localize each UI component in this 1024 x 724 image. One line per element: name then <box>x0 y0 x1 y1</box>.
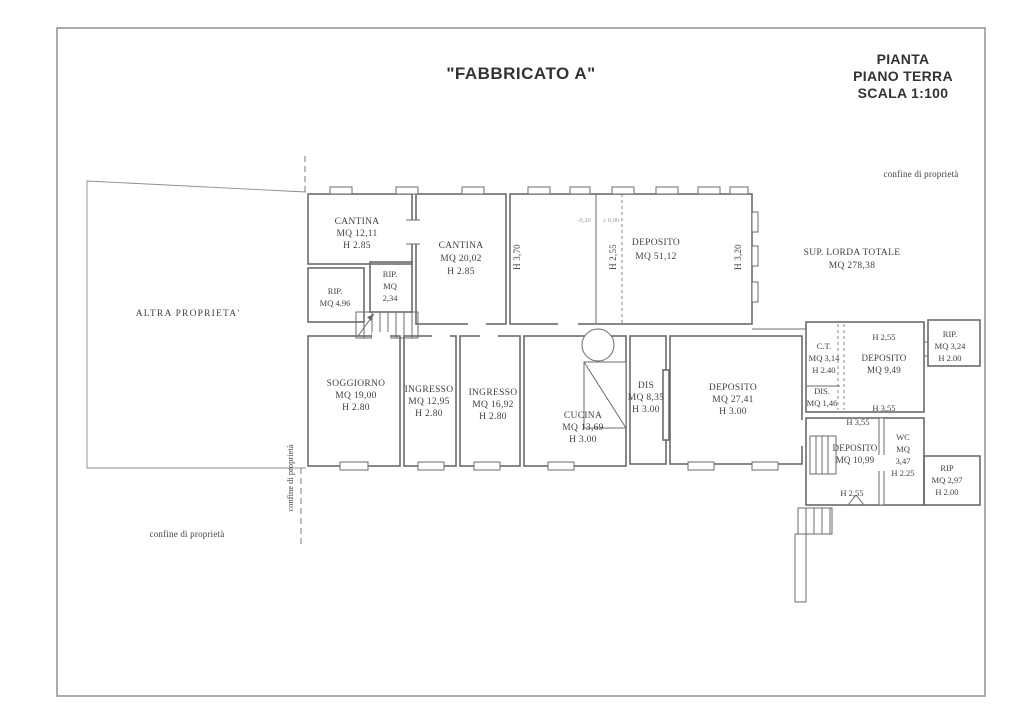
room-area: MQ 3,24 <box>935 341 966 351</box>
room-name: WC <box>896 432 910 442</box>
height-h255-dep949: H 2,55 <box>872 332 895 342</box>
room-name: CANTINA <box>335 217 380 227</box>
room-label-cantina-large: CANTINA MQ 20,02 H 2.85 <box>439 241 484 277</box>
room-label-ingresso-1692: INGRESSO MQ 16,92 H 2.80 <box>469 388 518 422</box>
room-area: MQ 8,35 <box>628 393 664 403</box>
height-h255-top: H 2,55 <box>608 244 618 270</box>
room-label-dis-146: DIS. MQ 1,46 <box>807 386 838 408</box>
room-name: RIP. <box>328 286 342 296</box>
height-h370: H 3,70 <box>512 244 522 270</box>
building-title: "FABBRICATO A" <box>446 64 595 83</box>
page-frame <box>57 28 985 696</box>
room-height: H 2.80 <box>342 403 370 413</box>
level-mark-left: -0,20 <box>577 217 591 224</box>
room-area: MQ 12,95 <box>408 397 449 407</box>
height-h355-lower: H 3,55 <box>846 417 869 427</box>
gross-area-label: SUP. LORDA TOTALE MQ 278,38 <box>804 248 901 271</box>
room-area: MQ 10,99 <box>836 455 875 465</box>
room-label-deposito-5112: DEPOSITO MQ 51,12 <box>632 238 680 262</box>
room-label-rip-297: RIP MQ 2,97 H 2.00 <box>932 463 963 497</box>
plan-title-line3: SCALA 1:100 <box>858 85 949 101</box>
walls-top-row <box>308 194 806 329</box>
room-name: DIS. <box>814 386 830 396</box>
room-height: H 3.00 <box>719 407 747 417</box>
height-h255-bottom: H 2,55 <box>840 488 863 498</box>
room-area: MQ 2,97 <box>932 475 963 485</box>
room-area-value: 2,34 <box>383 293 399 303</box>
room-area: MQ 9,49 <box>867 365 901 375</box>
gross-area-line1: SUP. LORDA TOTALE <box>804 248 901 258</box>
room-label-rip-496: RIP. MQ 4,96 <box>320 286 351 308</box>
room-name: DEPOSITO <box>632 238 680 248</box>
room-area-label: MQ <box>896 444 910 454</box>
level-marks: -0,20 ± 0,00 <box>577 217 619 224</box>
room-name: C.T. <box>817 341 831 351</box>
room-height: H 2.00 <box>938 353 961 363</box>
room-name: DIS <box>638 381 654 391</box>
room-name: DEPOSITO <box>862 353 907 363</box>
room-label-ct: C.T. MQ 3,14 H 2.40 <box>809 341 840 375</box>
room-name: DEPOSITO <box>833 443 878 453</box>
room-name: RIP. <box>943 329 957 339</box>
room-label-soggiorno: SOGGIORNO MQ 19,00 H 2.80 <box>327 379 386 413</box>
room-label-ingresso-1295: INGRESSO MQ 12,95 H 2.80 <box>405 385 454 419</box>
room-area: MQ 20,02 <box>440 254 481 264</box>
height-h320: H 3,20 <box>733 244 743 270</box>
room-height: H 2.80 <box>415 409 443 419</box>
property-boundary-lines <box>301 156 305 544</box>
room-name: CANTINA <box>439 241 484 251</box>
room-area: MQ 19,00 <box>335 391 376 401</box>
plan-title-line2: PIANO TERRA <box>853 68 953 84</box>
room-area: MQ 16,92 <box>472 400 513 410</box>
plan-title-line1: PIANTA <box>877 51 930 67</box>
boundary-label-top-right: confine di proprietà <box>884 169 959 179</box>
level-mark-right: ± 0,00 <box>603 217 620 224</box>
floor-plan-drawing: "FABBRICATO A" PIANTA PIANO TERRA SCALA … <box>0 0 1024 724</box>
room-label-dis-835: DIS MQ 8,35 H 3.00 <box>628 381 664 415</box>
room-height: H 2.85 <box>343 241 371 251</box>
room-area: MQ 51,12 <box>635 252 676 262</box>
boundary-label-bottom-left: confine di proprietà <box>150 529 225 539</box>
room-height: H 2.85 <box>447 267 475 277</box>
room-name: RIP. <box>383 269 397 279</box>
room-height: H 2.25 <box>891 468 914 478</box>
other-property-outline <box>87 181 306 468</box>
room-label-rip-234: RIP. MQ 2,34 <box>383 269 399 303</box>
room-name: RIP <box>940 463 954 473</box>
room-area: MQ 13,69 <box>562 423 603 433</box>
room-label-wc: WC MQ 3,47 H 2.25 <box>891 432 914 478</box>
boundary-label-vertical: confine di proprietà <box>285 444 295 511</box>
room-name: INGRESSO <box>469 388 518 398</box>
room-height: H 2.80 <box>479 412 507 422</box>
room-area: MQ 12,11 <box>336 229 377 239</box>
room-area: MQ 27,41 <box>712 395 753 405</box>
height-h355-upper: H 3,55 <box>872 403 895 413</box>
room-area: MQ 4,96 <box>320 298 351 308</box>
plan-title-block: PIANTA PIANO TERRA SCALA 1:100 <box>853 51 953 101</box>
room-label-cucina: CUCINA MQ 13,69 H 3.00 <box>562 411 603 445</box>
external-staircase <box>795 508 832 602</box>
room-name: DEPOSITO <box>709 383 757 393</box>
room-name: CUCINA <box>564 411 602 421</box>
room-label-cantina-small: CANTINA MQ 12,11 H 2.85 <box>335 217 380 251</box>
room-height: H 2.40 <box>812 365 835 375</box>
room-label-deposito-949: DEPOSITO MQ 9,49 <box>862 353 907 375</box>
room-label-deposito-2741: DEPOSITO MQ 27,41 H 3.00 <box>709 383 757 417</box>
other-property-label: ALTRA PROPRIETA' <box>136 309 241 319</box>
room-label-rip-324: RIP. MQ 3,24 H 2.00 <box>935 329 966 363</box>
room-height: H 2.00 <box>935 487 958 497</box>
room-name: INGRESSO <box>405 385 454 395</box>
room-area: MQ 3,14 <box>809 353 840 363</box>
room-name: SOGGIORNO <box>327 379 386 389</box>
room-label-deposito-1099: DEPOSITO MQ 10,99 <box>833 443 878 465</box>
room-area-value: 3,47 <box>896 456 911 466</box>
room-area: MQ 1,46 <box>807 398 838 408</box>
room-height: H 3.00 <box>632 405 660 415</box>
gross-area-line2: MQ 278,38 <box>829 261 876 271</box>
room-area-label: MQ <box>383 281 397 291</box>
room-height: H 3.00 <box>569 435 597 445</box>
